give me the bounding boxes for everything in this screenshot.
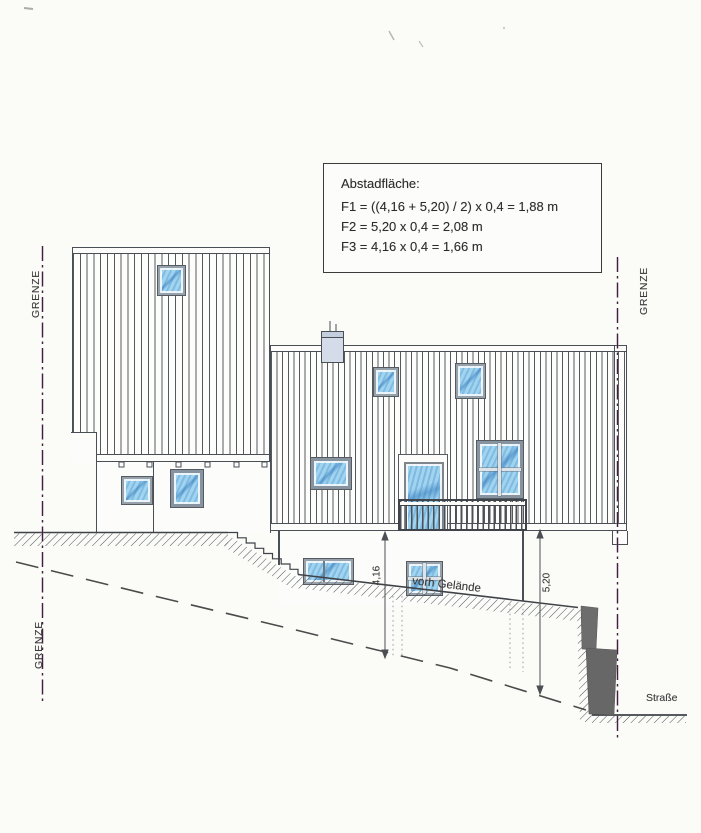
dimension-label-520: 5,20 <box>542 558 553 608</box>
window <box>171 470 203 507</box>
chimney-antenna <box>330 321 336 331</box>
facade-corner-trim <box>614 346 615 530</box>
hidden-lines <box>393 596 523 672</box>
cladding-notch <box>71 432 97 463</box>
gable-window <box>158 266 185 295</box>
dimension-line-520 <box>537 530 543 694</box>
boundary-label-right: GRENZE <box>638 266 650 316</box>
street-label: Straße <box>646 692 678 704</box>
boundary-label-left-lower: GRENZE <box>33 620 45 670</box>
basement-wall-right-edge <box>522 531 524 601</box>
retaining-wall <box>581 606 617 715</box>
chimney <box>321 331 344 363</box>
wall-corner-extension <box>612 531 628 545</box>
annotation-title: Abstadfläche: <box>341 174 601 194</box>
wall-seam <box>153 462 154 533</box>
window <box>311 458 351 489</box>
window <box>374 368 398 396</box>
basement-wall-left-edge <box>278 531 280 565</box>
window <box>122 477 152 504</box>
four-pane-window <box>477 441 523 498</box>
annotation-formula-f3: F3 = 4,16 x 0,4 = 1,66 m <box>341 237 601 257</box>
scan-artifacts <box>24 8 505 47</box>
setback-area-annotation-box: Abstadfläche: F1 = ((4,16 + 5,20) / 2) x… <box>323 163 602 273</box>
window <box>456 364 485 398</box>
basement-window <box>304 559 353 584</box>
elevation-drawing-sheet: GRENZE GRENZE GRENZE vorh Gelände Straße… <box>0 0 701 833</box>
annotation-formula-f1: F1 = ((4,16 + 5,20) / 2) x 0,4 = 1,88 m <box>341 197 601 217</box>
boundary-label-left-upper: GRENZE <box>30 269 42 319</box>
annotation-formula-f2: F2 = 5,20 x 0,4 = 2,08 m <box>341 217 601 237</box>
dimension-label-416: 4,16 <box>372 551 383 601</box>
balcony-railing <box>398 499 527 531</box>
